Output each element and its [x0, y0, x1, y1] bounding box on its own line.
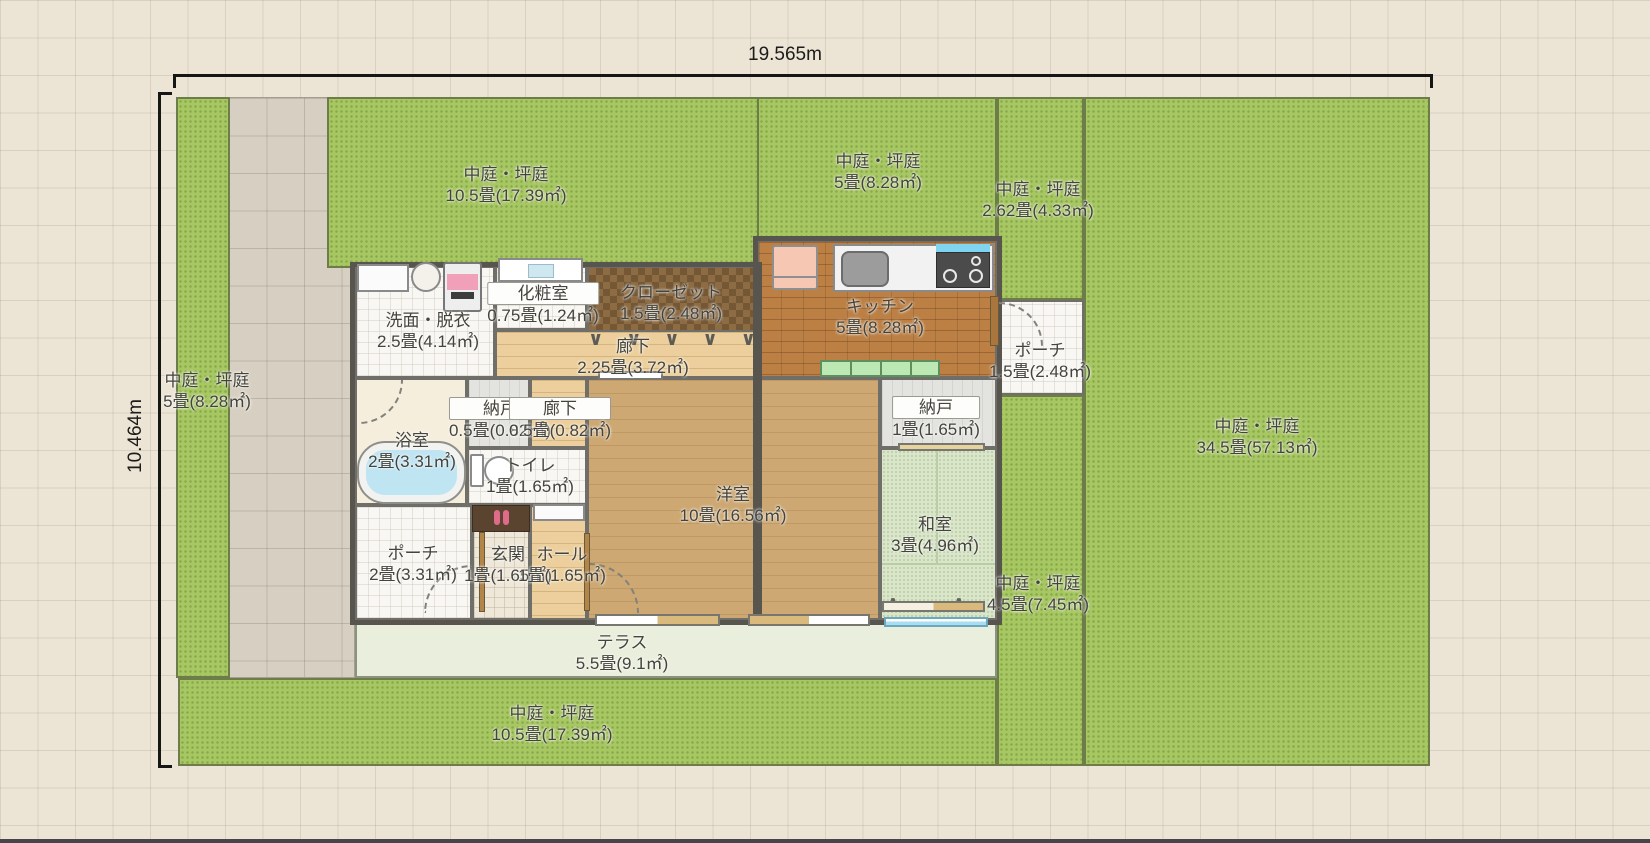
garden-bottom-label: 中庭・坪庭10.5畳(17.39㎡): [492, 703, 613, 745]
stove-glass-strip: [936, 244, 990, 252]
powder-room-label: 化粧室0.75畳(1.24㎡): [487, 282, 599, 326]
kitchen-porch-door-leaf[interactable]: [990, 296, 999, 346]
washing-machine-lid: [447, 274, 478, 290]
bath-label: 浴室2畳(3.31㎡): [368, 430, 456, 472]
storage-room-divider: [898, 443, 985, 451]
garden-right-strip-label: 中庭・坪庭4.5畳(7.45㎡): [987, 573, 1089, 615]
hanger-icon: ∨: [702, 330, 717, 350]
porch-kitchen-label: ポーチ1.5畳(2.48㎡): [989, 340, 1091, 382]
dimension-line-top: [173, 74, 1432, 77]
storage-label: 納戸1畳(1.65㎡): [892, 396, 980, 440]
kitchen-label: キッチン5畳(8.28㎡): [836, 296, 924, 338]
washbasin-icon: [411, 262, 441, 292]
dimension-height-label: 10.464m: [125, 376, 147, 496]
stove-icon: [936, 252, 990, 288]
garden-right-large-label: 中庭・坪庭34.5畳(57.13㎡): [1197, 416, 1318, 458]
refrigerator-icon[interactable]: [772, 245, 818, 290]
powder-sink-icon: [498, 258, 583, 282]
dimension-line-left: [158, 92, 161, 768]
garden-top-left-label: 中庭・坪庭10.5畳(17.39㎡): [446, 164, 567, 206]
slipper-right-icon: [503, 510, 509, 525]
kitchen-cabinet-row[interactable]: [820, 360, 940, 377]
closet-label: クローゼット1.5畳(2.48㎡): [620, 282, 722, 324]
genkan-step: [472, 505, 530, 532]
kitchen-sink-icon: [841, 251, 889, 287]
toilet-tank-icon: [470, 454, 484, 487]
japanese-room-label: 和室3畳(4.96㎡): [891, 514, 979, 556]
garden-top-right-label: 中庭・坪庭2.62畳(4.33㎡): [982, 179, 1094, 221]
dimension-tick: [158, 765, 172, 768]
dimension-tick: [1430, 74, 1433, 88]
terrace-label: テラス5.5畳(9.1㎡): [576, 632, 669, 674]
western-room-label: 洋室10畳(16.56㎡): [680, 484, 787, 526]
terrace-area[interactable]: [355, 620, 997, 678]
washroom-label: 洗面・脱衣2.5畳(4.14㎡): [377, 310, 479, 352]
hall-label: ホール1畳(1.65㎡): [518, 544, 606, 586]
washing-machine-panel: [451, 292, 474, 299]
toilet-label: トイレ1畳(1.65㎡): [486, 455, 574, 497]
dimension-width-label: 19.565m: [725, 44, 845, 66]
hallway-small-label: 廊下0.5畳(0.82㎡): [509, 397, 611, 441]
dimension-tick: [158, 92, 172, 95]
tatami-joint-horizontal: [882, 563, 995, 565]
western-room-window-right: [748, 614, 870, 626]
porch-entry-label: ポーチ2畳(3.31㎡): [369, 543, 457, 585]
garden-top-mid-label: 中庭・坪庭5畳(8.28㎡): [834, 151, 922, 193]
floorplan-canvas: ∨ ∨ ∨ ∨ ∨ ∧ ∧ 中庭・坪庭10.5畳(17.39㎡) 中庭・坪庭5畳…: [0, 0, 1650, 843]
canvas-bottom-edge: [0, 839, 1650, 843]
slipper-left-icon: [494, 510, 500, 525]
refrigerator-door-line: [774, 276, 816, 278]
hallway-label: 廊下2.25畳(3.72㎡): [577, 336, 689, 378]
dimension-tick: [173, 74, 176, 88]
hanger-icon: ∨: [741, 330, 756, 350]
shoe-cabinet: [533, 504, 585, 521]
japanese-room-window: [884, 617, 988, 627]
garden-left-strip-label: 中庭・坪庭5畳(8.28㎡): [163, 370, 251, 412]
western-room-window-left: [595, 614, 720, 626]
vanity-counter: [357, 264, 409, 292]
japanese-room-slider: [882, 601, 985, 612]
